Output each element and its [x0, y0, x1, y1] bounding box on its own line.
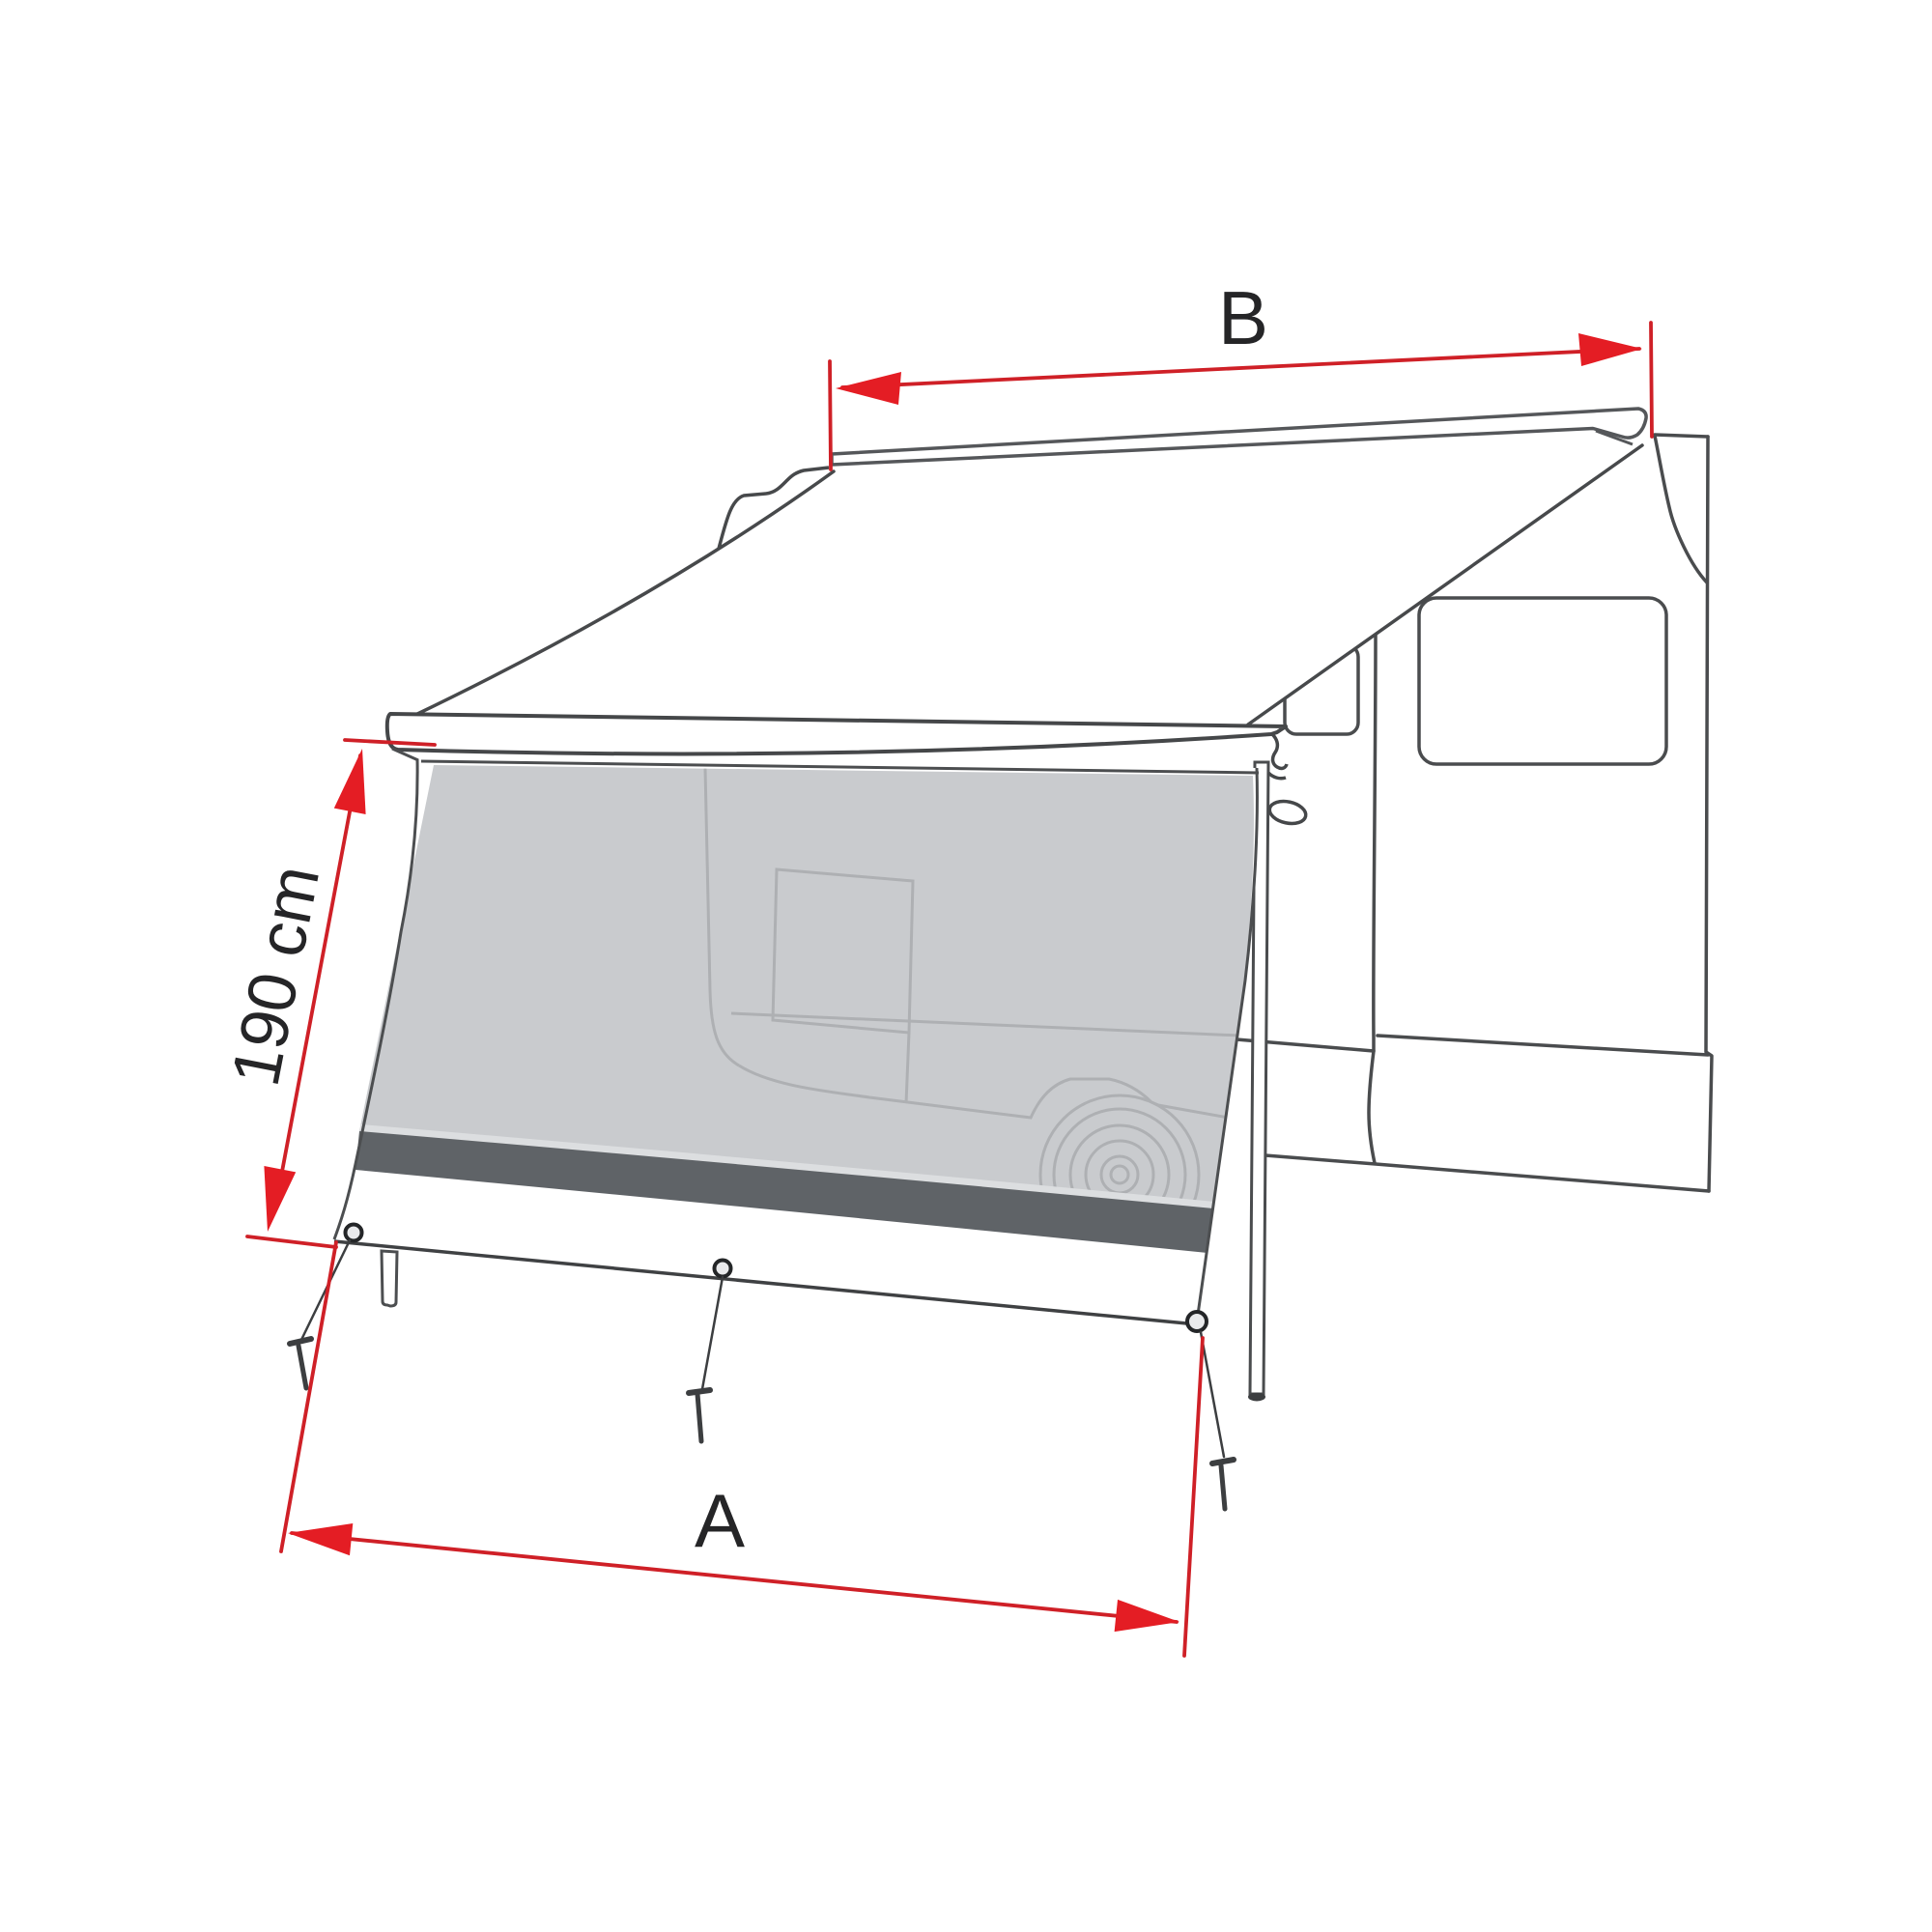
- svg-text:B: B: [1218, 275, 1268, 360]
- svg-text:A: A: [695, 1478, 745, 1563]
